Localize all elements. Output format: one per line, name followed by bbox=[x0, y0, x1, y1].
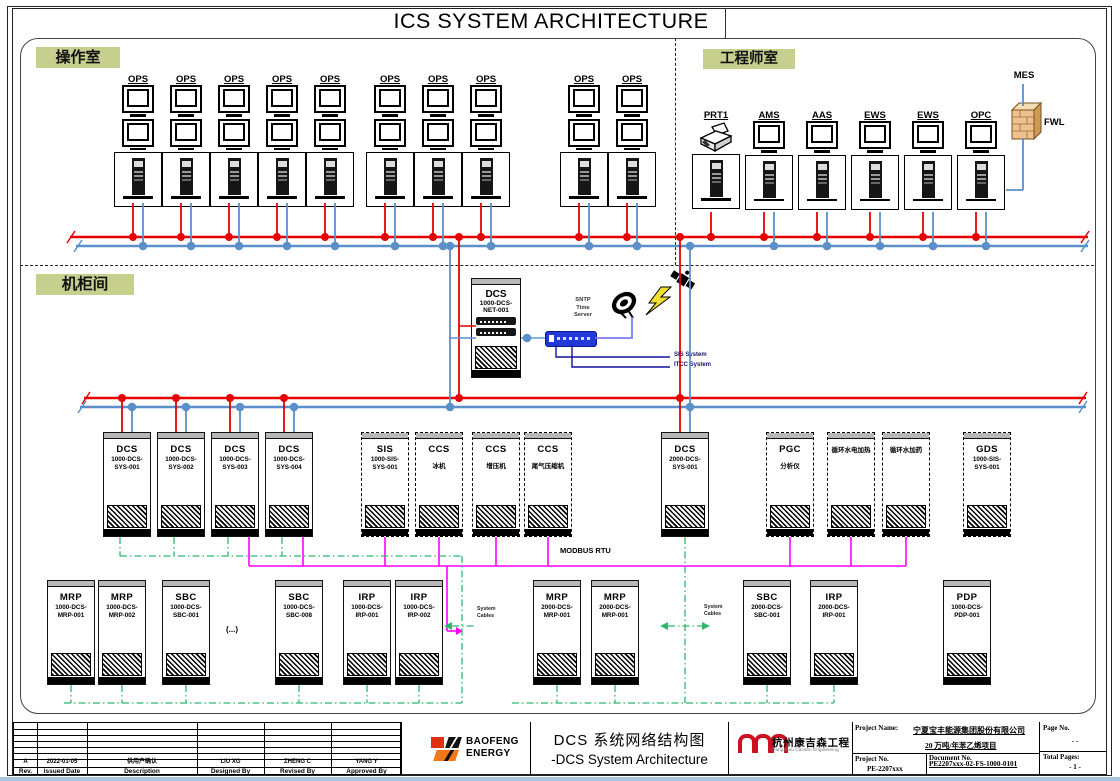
computer-tower-icon bbox=[384, 158, 397, 195]
cabinet-top-bar bbox=[944, 581, 990, 587]
cabinet-top-bar bbox=[744, 581, 790, 587]
cabinet-label: DCS bbox=[266, 444, 312, 455]
cabinet-base bbox=[276, 677, 322, 684]
monitor-icon bbox=[753, 121, 785, 149]
cabinet-base bbox=[944, 677, 990, 684]
window-edge bbox=[0, 777, 1120, 781]
workstation-label: OPS bbox=[162, 74, 210, 85]
workstation-tower-box bbox=[114, 152, 162, 207]
rack-switch-icon bbox=[476, 317, 516, 325]
cabinet-base bbox=[104, 529, 150, 536]
computer-tower-icon bbox=[975, 161, 988, 198]
workstation-monitors bbox=[851, 121, 899, 153]
cabinet-top-bar bbox=[662, 433, 708, 439]
cabinet-id: 1000-DCS- bbox=[48, 604, 94, 611]
cabinet-vent-hatch bbox=[419, 505, 459, 528]
cabinet-id: IRP-002 bbox=[396, 612, 442, 619]
monitor-stand bbox=[920, 150, 936, 153]
equipment-cabinet: PGC 分析仪 bbox=[766, 432, 814, 537]
cabinet-label: DCS bbox=[104, 444, 150, 455]
cabinet-id: 1000-SIS- bbox=[362, 456, 408, 463]
cabinet-id: 1000-DCS- bbox=[266, 456, 312, 463]
cabinet-label: DCS bbox=[158, 444, 204, 455]
workstation-tower-box bbox=[366, 152, 414, 207]
cabinet-label: CCS bbox=[473, 444, 519, 455]
monitor-icon bbox=[314, 85, 346, 113]
monitor-stand bbox=[624, 114, 640, 117]
baofeng-logo-icon bbox=[431, 737, 461, 762]
equipment-cabinet: MRP 1000-DCS- MRP-001 bbox=[47, 580, 95, 685]
monitor-stand bbox=[382, 114, 398, 117]
monitor-stand bbox=[430, 148, 446, 151]
revision-table: ARev.2022-01-05Issued Date供用户确认Descripti… bbox=[13, 722, 401, 775]
cabinet-id: SYS-001 bbox=[104, 464, 150, 471]
tower-base bbox=[423, 196, 453, 199]
cabinet-id: SYS-001 bbox=[964, 464, 1010, 471]
cabinet-base bbox=[48, 677, 94, 684]
equipment-cabinet: SIS 1000-SIS- SYS-001 bbox=[361, 432, 409, 537]
cabinet-id: SYS-002 bbox=[158, 464, 204, 471]
baofeng-logo-text: BAOFENG ENERGY bbox=[466, 736, 519, 760]
workstation-monitors bbox=[798, 121, 846, 153]
cabinet-vent-hatch bbox=[269, 505, 309, 528]
cabinet-id: 1000-DCS- bbox=[276, 604, 322, 611]
project-name-value-2: 20 万吨/年苯乙烯项目 bbox=[925, 740, 996, 751]
equipment-cabinet: DCS 1000-DCS- SYS-001 bbox=[103, 432, 151, 537]
workstation: OPS bbox=[366, 74, 414, 207]
monitor-icon bbox=[170, 85, 202, 113]
workstation-monitors bbox=[210, 85, 258, 150]
rev-label: Rev. bbox=[14, 767, 37, 776]
fwl-label: FWL bbox=[1044, 117, 1065, 128]
workstation-monitors bbox=[745, 121, 793, 153]
cabinet-top-bar bbox=[592, 581, 638, 587]
monitor-icon bbox=[218, 119, 250, 147]
workstation-monitors bbox=[162, 85, 210, 150]
cabinet-base bbox=[883, 529, 929, 536]
workstation: OPS bbox=[210, 74, 258, 207]
workstation: OPS bbox=[306, 74, 354, 207]
cabinet-top-bar bbox=[163, 581, 209, 587]
computer-tower-icon bbox=[578, 158, 591, 195]
cabinet-id: PDP-001 bbox=[944, 612, 990, 619]
cabinet-label-zh: 分析仪 bbox=[767, 463, 813, 471]
cabinet-top-bar bbox=[964, 433, 1010, 439]
monitor-stand bbox=[382, 148, 398, 151]
workstation-monitors bbox=[692, 121, 740, 153]
workstation-tower-box bbox=[904, 155, 952, 210]
workstation-monitors bbox=[366, 85, 414, 150]
workstation-tower-box bbox=[745, 155, 793, 210]
cabinet-id: 2000-DCS- bbox=[744, 604, 790, 611]
cabinet-vent-hatch bbox=[365, 505, 405, 528]
workstation-monitors bbox=[306, 85, 354, 150]
monitor-stand bbox=[761, 150, 777, 153]
workstation: OPC bbox=[957, 110, 1005, 210]
cabinet-vent-hatch bbox=[161, 505, 201, 528]
equipment-cabinet: DCS 1000-DCS- SYS-004 bbox=[265, 432, 313, 537]
workstation-label: OPS bbox=[414, 74, 462, 85]
cabinet-vent-hatch bbox=[665, 505, 705, 528]
workstation-monitors bbox=[608, 85, 656, 150]
monitor-icon bbox=[374, 85, 406, 113]
workstation-label: OPS bbox=[462, 74, 510, 85]
workstation-monitors bbox=[114, 85, 162, 150]
cabinet-base bbox=[396, 677, 442, 684]
workstation: EWS bbox=[851, 110, 899, 210]
cabinet-top-bar bbox=[416, 433, 462, 439]
cabinet-id: MRP-001 bbox=[592, 612, 638, 619]
workstation-label: OPS bbox=[210, 74, 258, 85]
cabinet-base bbox=[99, 677, 145, 684]
itcc-system-label: ITCC System bbox=[674, 362, 711, 368]
project-no-value: PE-2207xxx bbox=[867, 765, 903, 773]
cabinet-id: 1000-DCS- bbox=[396, 604, 442, 611]
workstation: EWS bbox=[904, 110, 952, 210]
cabinet-id: 2000-DCS- bbox=[811, 604, 857, 611]
monitor-stand bbox=[973, 150, 989, 153]
monitor-stand bbox=[576, 114, 592, 117]
cabinet-id: 1000-DCS- bbox=[158, 456, 204, 463]
computer-tower-icon bbox=[180, 158, 193, 195]
cabinet-vent-hatch bbox=[51, 653, 91, 676]
cabinet-id: MRP-001 bbox=[534, 612, 580, 619]
equipment-cabinet: 循环水电加热 bbox=[827, 432, 875, 537]
tower-base bbox=[754, 199, 784, 202]
page-title: ICS SYSTEM ARCHITECTURE bbox=[280, 9, 822, 34]
monitor-icon bbox=[470, 119, 502, 147]
tower-base bbox=[375, 196, 405, 199]
monitor-icon bbox=[122, 119, 154, 147]
cabinet-id: 1000-DCS- bbox=[212, 456, 258, 463]
rev-label: Approved By bbox=[331, 767, 402, 776]
monitor-icon bbox=[470, 85, 502, 113]
workstation-monitors bbox=[904, 121, 952, 153]
rev-table-line bbox=[14, 747, 400, 748]
cabinet-label: MRP bbox=[534, 592, 580, 603]
monitor-icon bbox=[314, 119, 346, 147]
rev-table-line bbox=[14, 741, 400, 742]
cabinet-vent-hatch bbox=[595, 653, 635, 676]
workstation-tower-box bbox=[851, 155, 899, 210]
cabinet-top-bar bbox=[99, 581, 145, 587]
monitor-stand bbox=[867, 150, 883, 153]
computer-tower-icon bbox=[710, 160, 723, 197]
computer-tower-icon bbox=[432, 158, 445, 195]
cabinet-vent-hatch bbox=[537, 653, 577, 676]
cabinet-label: SBC bbox=[276, 592, 322, 603]
cabinet-label: CCS bbox=[525, 444, 571, 455]
cabinet-ellipsis: (...) bbox=[226, 625, 238, 634]
equipment-cabinet: MRP 1000-DCS- MRP-002 bbox=[98, 580, 146, 685]
cabinet-base bbox=[811, 677, 857, 684]
cabinet-label: PDP bbox=[944, 592, 990, 603]
total-pages-label: Total Pages: bbox=[1043, 753, 1080, 761]
cabinet-label: MRP bbox=[592, 592, 638, 603]
equipment-cabinet: SBC 1000-DCS- SBC-008 bbox=[275, 580, 323, 685]
rev-label: Description bbox=[87, 767, 197, 776]
workstation-monitors bbox=[414, 85, 462, 150]
cabinet-vent-hatch bbox=[215, 505, 255, 528]
equipment-cabinet: IRP 2000-DCS- IRP-001 bbox=[810, 580, 858, 685]
workstation-monitors bbox=[560, 85, 608, 150]
cabinet-label: DCS bbox=[212, 444, 258, 455]
workstation: OPS bbox=[560, 74, 608, 207]
monitor-icon bbox=[616, 85, 648, 113]
cabinet-base bbox=[767, 529, 813, 536]
cabinet-room-label: 机柜间 bbox=[36, 274, 134, 295]
room-divider-horizontal bbox=[20, 265, 1094, 266]
equipment-cabinet: IRP 1000-DCS- IRP-002 bbox=[395, 580, 443, 685]
cabinet-label-zh: 冰机 bbox=[416, 463, 462, 471]
sis-system-label: SIS System bbox=[674, 352, 707, 358]
computer-tower-icon bbox=[480, 158, 493, 195]
monitor-stand bbox=[814, 150, 830, 153]
equipment-cabinet: MRP 2000-DCS- MRP-001 bbox=[533, 580, 581, 685]
cabinet-top-bar bbox=[883, 433, 929, 439]
cabinet-label: SBC bbox=[744, 592, 790, 603]
page-no-label: Page No. bbox=[1043, 724, 1069, 732]
workstation-monitors bbox=[258, 85, 306, 150]
rev-table-line bbox=[14, 767, 400, 768]
workstation-tower-box bbox=[306, 152, 354, 207]
cabinet-base bbox=[344, 677, 390, 684]
monitor-icon bbox=[122, 85, 154, 113]
cabinet-top-bar bbox=[534, 581, 580, 587]
drawing-title-en: -DCS System Architecture bbox=[531, 752, 728, 767]
cabinet-id: 2000-DCS- bbox=[662, 456, 708, 463]
monitor-icon bbox=[965, 121, 997, 149]
rev-table-line bbox=[14, 735, 400, 736]
page-no-value: - - bbox=[1043, 737, 1107, 745]
cabinet-label: PGC bbox=[767, 444, 813, 455]
printer-icon bbox=[694, 121, 738, 153]
cabinet-vent-hatch bbox=[947, 653, 987, 676]
cabinet-label: MRP bbox=[48, 592, 94, 603]
cabinet-id: SBC-001 bbox=[163, 612, 209, 619]
computer-tower-icon bbox=[132, 158, 145, 195]
workstation-tower-box bbox=[414, 152, 462, 207]
cabinet-base bbox=[534, 677, 580, 684]
monitor-stand bbox=[478, 114, 494, 117]
cabinet-vent-hatch bbox=[102, 653, 142, 676]
monitor-stand bbox=[226, 148, 242, 151]
cabinet-label: GDS bbox=[964, 444, 1010, 455]
cabinet-vent-hatch bbox=[528, 505, 568, 528]
cabinet-label: IRP bbox=[344, 592, 390, 603]
computer-tower-icon bbox=[922, 161, 935, 198]
cabinet-label-zh: 循环水加药 bbox=[883, 447, 929, 455]
workstation-label: OPS bbox=[560, 74, 608, 85]
cabinet-vent-hatch bbox=[747, 653, 787, 676]
engineer-room-label: 工程师室 bbox=[703, 49, 795, 69]
cabinet-id: SBC-001 bbox=[744, 612, 790, 619]
cabinet-top-bar bbox=[525, 433, 571, 439]
equipment-cabinet: 循环水加药 bbox=[882, 432, 930, 537]
workstation-monitors bbox=[957, 121, 1005, 153]
cansen-name-en: Hangzhou Cansen Engineering bbox=[772, 748, 839, 753]
cabinet-top-bar bbox=[473, 433, 519, 439]
cabinet-id: SYS-001 bbox=[362, 464, 408, 471]
monitor-stand bbox=[178, 114, 194, 117]
equipment-cabinet: CCS 增压机 bbox=[472, 432, 520, 537]
cabinet-base bbox=[472, 370, 520, 377]
drawing-title-cell: DCS 系统网络结构图 -DCS System Architecture bbox=[530, 722, 728, 775]
cabinet-id: 2000-DCS- bbox=[592, 604, 638, 611]
cabinet-id: SYS-001 bbox=[662, 464, 708, 471]
cabinet-top-bar bbox=[396, 581, 442, 587]
cabinet-vent-hatch bbox=[107, 505, 147, 528]
cabinet-base bbox=[163, 677, 209, 684]
cabinet-top-bar bbox=[472, 279, 520, 285]
cabinet-base bbox=[964, 529, 1010, 536]
cabinet-id: 1000-DCS- bbox=[344, 604, 390, 611]
monitor-icon bbox=[568, 85, 600, 113]
equipment-cabinet: DCS 1000-DCS- SYS-002 bbox=[157, 432, 205, 537]
tower-base bbox=[171, 196, 201, 199]
monitor-icon bbox=[616, 119, 648, 147]
cabinet-top-bar bbox=[811, 581, 857, 587]
cabinet-label-zh: 循环水电加热 bbox=[828, 447, 874, 455]
cabinet-label: DCS bbox=[472, 289, 520, 300]
monitor-stand bbox=[226, 114, 242, 117]
monitor-icon bbox=[859, 121, 891, 149]
rev-table-line bbox=[14, 729, 400, 730]
document-no-value: PE2207xxx-02-FS-1000-0101 bbox=[929, 761, 1037, 769]
cabinet-id: 2000-DCS- bbox=[534, 604, 580, 611]
cabinet-top-bar bbox=[344, 581, 390, 587]
cabinet-base bbox=[212, 529, 258, 536]
cabinet-id: NET-001 bbox=[472, 307, 520, 314]
cabinet-base bbox=[158, 529, 204, 536]
dcs-net-cabinet: DCS 1000-DCS- NET-001 bbox=[471, 278, 521, 378]
workstation-tower-box bbox=[608, 152, 656, 207]
equipment-cabinet: CCS 冰机 bbox=[415, 432, 463, 537]
workstation-label: EWS bbox=[904, 110, 952, 121]
cabinet-base bbox=[473, 529, 519, 536]
equipment-cabinet: SBC 1000-DCS- SBC-001 bbox=[162, 580, 210, 685]
cabinet-base bbox=[744, 677, 790, 684]
workstation: AMS bbox=[745, 110, 793, 210]
cabinet-id: 1000-DCS- bbox=[472, 300, 520, 307]
rev-table-line bbox=[14, 753, 400, 754]
cabinet-vent-hatch bbox=[476, 505, 516, 528]
cabinet-vent-hatch bbox=[814, 653, 854, 676]
workstation-label: AMS bbox=[745, 110, 793, 121]
cabinet-base bbox=[525, 529, 571, 536]
cabinet-id: IRP-001 bbox=[811, 612, 857, 619]
project-name-label: Project Name: bbox=[855, 724, 898, 732]
monitor-stand bbox=[478, 148, 494, 151]
equipment-cabinet: DCS 1000-DCS- SYS-003 bbox=[211, 432, 259, 537]
monitor-stand bbox=[130, 114, 146, 117]
cabinet-vent-hatch bbox=[347, 653, 387, 676]
monitor-stand bbox=[178, 148, 194, 151]
cabinet-id: 1000-DCS- bbox=[104, 456, 150, 463]
mes-label: MES bbox=[1007, 70, 1041, 81]
cabinet-top-bar bbox=[104, 433, 150, 439]
cabinet-vent-hatch bbox=[967, 505, 1007, 528]
cabinet-id: 1000-DCS- bbox=[163, 604, 209, 611]
equipment-cabinet: DCS 2000-DCS- SYS-001 bbox=[661, 432, 709, 537]
cabinet-label: DCS bbox=[662, 444, 708, 455]
tower-base bbox=[860, 199, 890, 202]
cabinet-top-bar bbox=[158, 433, 204, 439]
monitor-icon bbox=[568, 119, 600, 147]
project-info-cell: Project Name: 宁夏宝丰能源集团股份有限公司 20 万吨/年苯乙烯项… bbox=[852, 722, 1106, 775]
monitor-stand bbox=[274, 148, 290, 151]
monitor-icon bbox=[912, 121, 944, 149]
workstation: OPS bbox=[608, 74, 656, 207]
cabinet-vent-hatch bbox=[831, 505, 871, 528]
sntp-server-label: SNTP Time Server bbox=[562, 297, 604, 320]
tower-base bbox=[701, 198, 731, 201]
rev-label: Revised By bbox=[264, 767, 331, 776]
workstation-tower-box bbox=[210, 152, 258, 207]
cabinet-top-bar bbox=[362, 433, 408, 439]
workstation-tower-box bbox=[798, 155, 846, 210]
cabinet-vent-hatch bbox=[399, 653, 439, 676]
workstation: OPS bbox=[414, 74, 462, 207]
tower-base bbox=[617, 196, 647, 199]
computer-tower-icon bbox=[869, 161, 882, 198]
equipment-cabinet: CCS 尾气压缩机 bbox=[524, 432, 572, 537]
network-switch-icon bbox=[545, 331, 597, 347]
monitor-stand bbox=[624, 148, 640, 151]
cabinet-label: CCS bbox=[416, 444, 462, 455]
tower-base bbox=[471, 196, 501, 199]
equipment-cabinet: GDS 1000-SIS- SYS-001 bbox=[963, 432, 1011, 537]
cabinet-vent-hatch bbox=[475, 346, 517, 369]
cabinet-label: SIS bbox=[362, 444, 408, 455]
monitor-stand bbox=[130, 148, 146, 151]
workstation: OPS bbox=[258, 74, 306, 207]
cabinet-vent-hatch bbox=[770, 505, 810, 528]
tower-base bbox=[913, 199, 943, 202]
rack-switch-icon bbox=[476, 328, 516, 336]
workstation-tower-box bbox=[957, 155, 1005, 210]
equipment-cabinet: MRP 2000-DCS- MRP-001 bbox=[591, 580, 639, 685]
monitor-icon bbox=[422, 119, 454, 147]
cabinet-label: SBC bbox=[163, 592, 209, 603]
cabinet-top-bar bbox=[266, 433, 312, 439]
cabinet-base bbox=[416, 529, 462, 536]
project-no-label: Project No. bbox=[855, 755, 889, 763]
cabinet-top-bar bbox=[212, 433, 258, 439]
drawing-title-zh: DCS 系统网络结构图 bbox=[531, 729, 728, 750]
drawing-page: ICS SYSTEM ARCHITECTURE 操作室 工程师室 机柜间 OPS… bbox=[0, 0, 1120, 781]
total-pages-value: - 1 - bbox=[1043, 763, 1107, 771]
workstation-tower-box bbox=[692, 154, 740, 209]
modbus-rtu-label: MODBUS RTU bbox=[560, 546, 611, 555]
cabinet-id: 1000-DCS- bbox=[99, 604, 145, 611]
workstation: AAS bbox=[798, 110, 846, 210]
monitor-stand bbox=[322, 114, 338, 117]
monitor-icon bbox=[266, 85, 298, 113]
workstation-label: PRT1 bbox=[692, 110, 740, 121]
workstation-label: OPS bbox=[258, 74, 306, 85]
monitor-icon bbox=[374, 119, 406, 147]
workstation-label: OPS bbox=[306, 74, 354, 85]
cabinet-top-bar bbox=[48, 581, 94, 587]
cabinet-base bbox=[662, 529, 708, 536]
cabinet-id: IRP-001 bbox=[344, 612, 390, 619]
monitor-icon bbox=[266, 119, 298, 147]
system-cables-label: System Cables bbox=[704, 604, 736, 618]
cabinet-top-bar bbox=[828, 433, 874, 439]
workstation-monitors bbox=[462, 85, 510, 150]
cabinet-base bbox=[266, 529, 312, 536]
